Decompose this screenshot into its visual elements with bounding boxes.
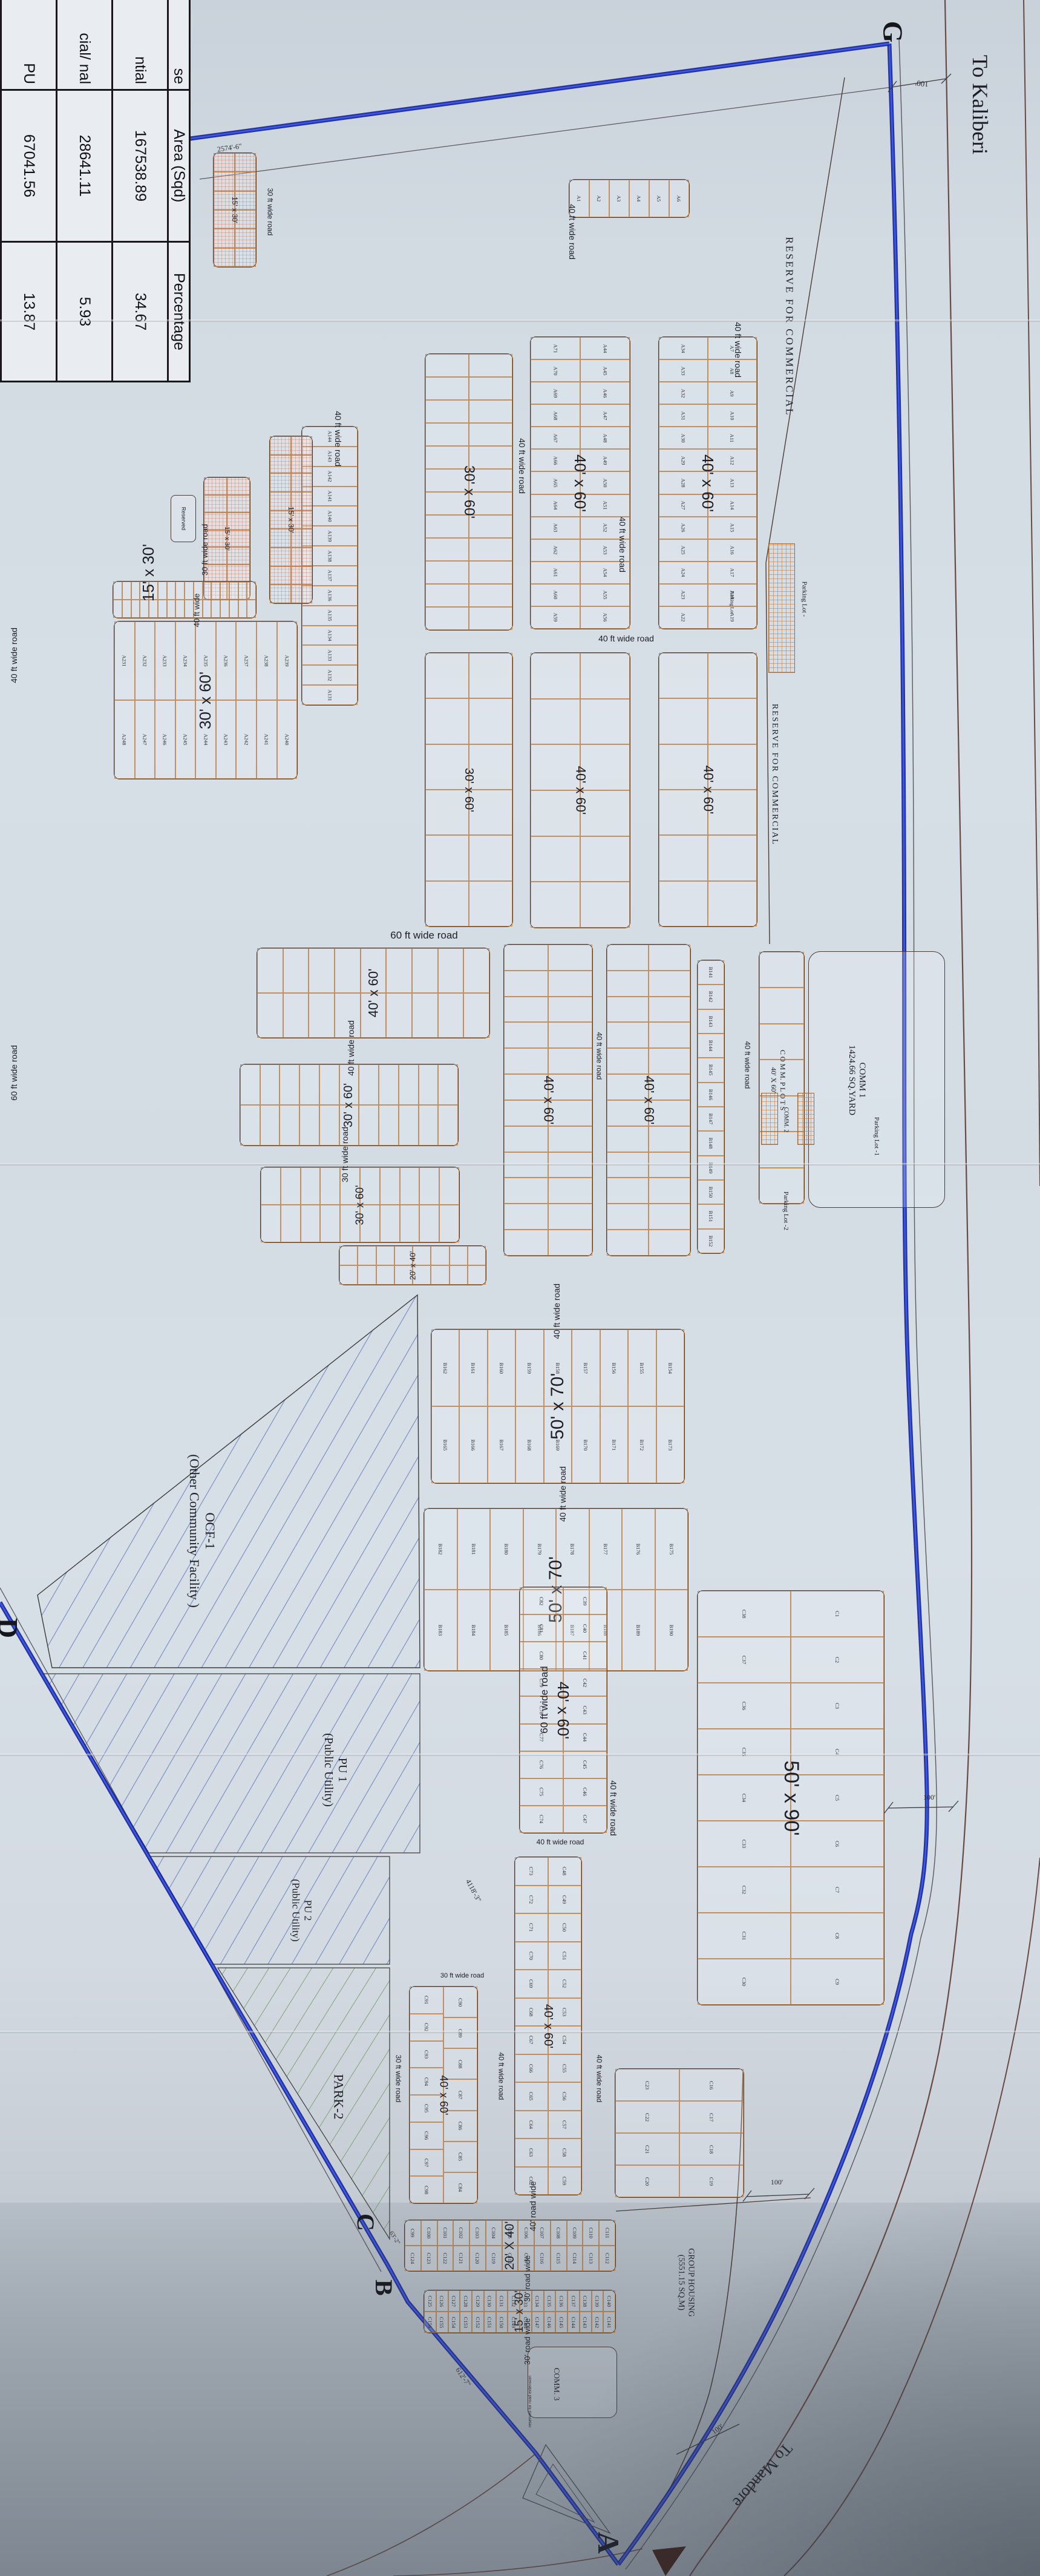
plot-cell — [504, 1178, 548, 1204]
plot-cell — [438, 1064, 458, 1105]
plot-C9: C9 — [791, 1959, 884, 2005]
plot-cell — [291, 548, 312, 566]
plot-C17: C17 — [679, 2101, 744, 2133]
plot-cell — [399, 1105, 419, 1145]
plot-cell — [386, 948, 412, 993]
plot-cell — [394, 1246, 413, 1265]
plot-block-a-tiny — [113, 581, 257, 618]
plot-cell — [291, 473, 312, 492]
plot-C42: C42 — [563, 1669, 607, 1696]
plot-C110: C110 — [583, 2220, 599, 2246]
plot-C38: C38 — [698, 1591, 791, 1637]
plot-cell — [291, 511, 312, 529]
road-curve-sw2 — [393, 2549, 643, 2576]
plot-A70: A70 — [531, 359, 580, 382]
plot-C142: C142 — [592, 2312, 604, 2333]
plot-C146: C146 — [544, 2312, 556, 2333]
plot-cell — [504, 997, 548, 1023]
plot-A242: A242 — [236, 700, 257, 779]
plot-cell — [708, 653, 757, 698]
plot-cell — [548, 997, 592, 1023]
plot-C139: C139 — [592, 2290, 604, 2312]
plot-cell — [469, 423, 512, 446]
plot-C31: C31 — [698, 1913, 791, 1959]
plot-C50: C50 — [548, 1913, 581, 1942]
plot-cell — [759, 1024, 804, 1060]
table-percentage-value: 34.67 — [113, 242, 168, 382]
plot-C81: C81 — [520, 1614, 563, 1642]
group-housing-topline — [616, 2198, 811, 2211]
plot-block-a-1530-h1: 15' x 30' — [213, 152, 257, 267]
plot-C107: C107 — [534, 2220, 551, 2246]
plot-cell — [204, 477, 227, 495]
plot-cell — [412, 993, 438, 1038]
plot-cell — [281, 1205, 301, 1242]
plot-A64: A64 — [531, 494, 580, 517]
plot-cell — [227, 530, 250, 548]
plot-cell — [649, 1074, 690, 1100]
plot-cell — [238, 582, 247, 600]
plot-A233: A233 — [155, 621, 175, 700]
plot-cell — [339, 1246, 358, 1265]
plot-cell — [214, 191, 235, 210]
plot-C73: C73 — [515, 1857, 548, 1886]
plot-B177: B177 — [589, 1509, 623, 1590]
plot-C33: C33 — [698, 1821, 791, 1867]
plot-cell — [149, 600, 158, 618]
plot-cell — [548, 1204, 592, 1230]
plot-C53: C53 — [548, 1998, 581, 2027]
plot-block-c-1623: C23C22C21C20C16C17C18C19 — [615, 2068, 744, 2198]
plot-cell — [227, 565, 250, 582]
plot-C119: C119 — [486, 2246, 502, 2271]
plot-cell — [309, 993, 335, 1038]
plot-block-a-3060-n: 30' x 60' — [425, 353, 513, 631]
plot-C86: C86 — [443, 2111, 477, 2142]
plot-cell — [229, 582, 238, 600]
plot-C114: C114 — [567, 2246, 583, 2271]
plot-cell — [358, 1265, 376, 1285]
plot-block-c-4060-w: C91C92C93C94C95C96C97C98C90C89C88C87C86C… — [409, 1986, 478, 2204]
plot-cell — [235, 229, 256, 247]
plot-cell — [394, 1265, 413, 1285]
plot-A54: A54 — [580, 562, 630, 584]
plot-A231: A231 — [114, 621, 135, 700]
plot-A30: A30 — [659, 427, 708, 449]
plot-C103: C103 — [469, 2220, 486, 2246]
plot-C20: C20 — [615, 2165, 679, 2197]
plot-C36: C36 — [698, 1683, 791, 1729]
plot-cell — [214, 229, 235, 247]
plot-C63: C63 — [515, 2138, 548, 2167]
plot-cell — [270, 529, 291, 548]
plot-A18: A18 — [708, 584, 757, 606]
plot-cell — [425, 538, 469, 561]
parking-grid — [797, 1093, 814, 1145]
plot-B147: B147 — [698, 1107, 724, 1131]
plot-cell — [438, 948, 464, 993]
table-percentage-value: 5.93 — [57, 242, 113, 382]
plot-B161: B161 — [459, 1329, 487, 1406]
plot-A132: A132 — [302, 665, 358, 685]
plot-cell — [419, 1105, 439, 1145]
plot-A237: A237 — [236, 621, 257, 700]
table-corner-cell: se — [168, 0, 190, 90]
plot-cell — [339, 1064, 359, 1105]
plot-cell — [220, 600, 229, 618]
table-row: ntial167538.8934.67 — [113, 0, 168, 382]
plot-cell — [291, 529, 312, 548]
plot-A61: A61 — [531, 562, 580, 584]
plot-C97: C97 — [410, 2149, 443, 2177]
plot-cell — [319, 1105, 339, 1145]
plot-C98: C98 — [410, 2176, 443, 2203]
plot-A8: A8 — [708, 359, 757, 382]
plot-block-b-4060-2: 40' x 60' — [606, 944, 691, 1256]
plot-C136: C136 — [555, 2290, 567, 2312]
plot-B144: B144 — [698, 1034, 724, 1058]
plot-B179: B179 — [523, 1509, 557, 1590]
plot-C66: C66 — [515, 2054, 548, 2083]
plot-C67: C67 — [515, 2026, 548, 2054]
plot-block-comm-1 — [808, 951, 945, 1208]
plot-cell — [113, 582, 122, 600]
plot-cell — [607, 1074, 649, 1100]
plot-C46: C46 — [563, 1778, 607, 1806]
plot-cell — [649, 1178, 690, 1204]
plot-A24: A24 — [659, 562, 708, 584]
plot-C111: C111 — [599, 2220, 615, 2246]
ocf-area — [38, 1295, 420, 1668]
top-strip-line — [200, 87, 892, 179]
plot-block-comm-plots — [759, 951, 805, 1204]
reserve-strip-line — [766, 77, 845, 944]
plot-A22: A22 — [659, 606, 708, 629]
landuse-table: se Area (Sqd) Percentage ntial167538.893… — [0, 0, 191, 352]
plot-A71: A71 — [531, 337, 580, 359]
plot-B149: B149 — [698, 1156, 724, 1180]
plot-C76: C76 — [520, 1751, 563, 1778]
plot-B146: B146 — [698, 1083, 724, 1107]
plot-B158: B158 — [544, 1329, 572, 1406]
plot-cell — [659, 653, 708, 698]
plot-A19: A19 — [708, 606, 757, 629]
plot-cell — [358, 1246, 376, 1265]
plot-C121: C121 — [453, 2246, 469, 2271]
plot-cell — [386, 993, 412, 1038]
plot-cell — [185, 600, 194, 618]
plot-cell — [260, 1105, 280, 1145]
plot-C124: C124 — [405, 2246, 421, 2271]
plot-C47: C47 — [563, 1806, 607, 1833]
plot-A244: A244 — [195, 700, 216, 779]
plot-C112: C112 — [599, 2246, 615, 2271]
plot-C57: C57 — [548, 2111, 581, 2139]
plot-cell — [548, 945, 592, 971]
plot-C125: C125 — [424, 2290, 436, 2312]
plot-cell — [759, 952, 804, 988]
plot-cell — [607, 945, 649, 971]
plot-cell — [360, 1205, 380, 1242]
plot-B142: B142 — [698, 985, 724, 1009]
plot-A52: A52 — [580, 517, 630, 539]
plot-cell — [359, 1064, 379, 1105]
plot-cell — [131, 600, 140, 618]
plot-cell — [469, 400, 512, 423]
plot-cell — [339, 1105, 359, 1145]
plot-cell — [235, 172, 256, 191]
plot-B150: B150 — [698, 1180, 724, 1204]
plot-cell — [469, 607, 512, 630]
plot-C127: C127 — [448, 2290, 460, 2312]
plot-A235: A235 — [195, 621, 216, 700]
plot-block-b-col: B141B142B143B144B145B146B147B148B149B150… — [697, 960, 725, 1254]
plot-block-a-row-top: A1A2A3A4A5A6 — [569, 179, 690, 218]
plot-cell — [204, 565, 227, 582]
plot-A245: A245 — [175, 700, 196, 779]
plot-C78: C78 — [520, 1696, 563, 1723]
plot-C88: C88 — [443, 2048, 477, 2079]
plot-A131: A131 — [302, 685, 358, 705]
plot-B190: B190 — [655, 1590, 688, 1671]
plot-cell — [149, 582, 158, 600]
plot-A13: A13 — [708, 471, 757, 494]
plot-cell — [260, 1064, 280, 1105]
plot-cell — [257, 948, 283, 993]
plot-block-c-1530: C125C126C127C128C129C130C131C132C133C134… — [424, 2290, 616, 2333]
plot-C115: C115 — [551, 2246, 567, 2271]
table-row-label: ntial — [113, 0, 168, 90]
plot-cell — [425, 446, 469, 469]
table-row-label: PU — [1, 0, 57, 90]
plot-cell — [301, 1167, 321, 1205]
plot-C71: C71 — [515, 1913, 548, 1942]
plot-C85: C85 — [443, 2142, 477, 2172]
plot-cell — [548, 1126, 592, 1152]
plot-cell — [204, 513, 227, 530]
plot-cell — [247, 600, 256, 618]
plot-B159: B159 — [515, 1329, 543, 1406]
plot-C106: C106 — [518, 2220, 534, 2246]
plot-cell — [211, 582, 220, 600]
plot-A65: A65 — [531, 471, 580, 494]
plot-C147: C147 — [532, 2312, 544, 2333]
plot-C8: C8 — [791, 1913, 884, 1959]
plot-B183: B183 — [424, 1590, 457, 1671]
plot-cell — [580, 882, 630, 928]
plot-cell — [167, 582, 176, 600]
plot-B141: B141 — [698, 960, 724, 985]
plot-cell — [468, 1246, 486, 1265]
plot-C58: C58 — [548, 2138, 581, 2167]
plot-B182: B182 — [424, 1509, 457, 1590]
plot-C138: C138 — [580, 2290, 592, 2312]
plot-cell — [425, 400, 469, 423]
plot-A48: A48 — [580, 427, 630, 449]
plot-cell — [283, 948, 309, 993]
plot-block-z-4060: 40' x 60' — [257, 948, 490, 1038]
plot-cell — [439, 1167, 459, 1205]
plot-A16: A16 — [708, 539, 757, 562]
plot-C62: C62 — [515, 2167, 548, 2195]
plot-A7: A7 — [708, 337, 757, 359]
plot-B170: B170 — [572, 1406, 600, 1483]
plot-cell — [399, 1064, 419, 1105]
plot-cell — [158, 582, 167, 600]
plot-C51: C51 — [548, 1942, 581, 1970]
plot-C72: C72 — [515, 1886, 548, 1914]
plot-C113: C113 — [583, 2246, 599, 2271]
plot-cell — [425, 607, 469, 630]
plot-cell — [708, 790, 757, 835]
plot-cell — [291, 566, 312, 585]
plot-cell — [211, 600, 220, 618]
plot-block-c-2040: C99C100C101C102C103C104C105C106C107C108C… — [404, 2220, 616, 2272]
plot-cell — [548, 1152, 592, 1178]
parking-grid — [761, 1093, 778, 1145]
plot-A69: A69 — [531, 382, 580, 404]
plot-C35: C35 — [698, 1729, 791, 1775]
plot-cell — [659, 744, 708, 790]
plot-block-z-3060-1: 30' x 60' — [240, 1064, 459, 1146]
plot-cell — [257, 993, 283, 1038]
plot-cell — [214, 210, 235, 229]
plot-cell — [283, 993, 309, 1038]
plot-block-a-4060-ne: A34A33A32A31A30A29A28A27A26A25A24A23A22A… — [658, 336, 757, 629]
plot-C116: C116 — [534, 2246, 551, 2271]
table-area-value: 167538.89 — [113, 90, 168, 242]
plot-B178: B178 — [556, 1509, 589, 1590]
plot-B173: B173 — [656, 1406, 684, 1483]
plot-cell — [359, 1105, 379, 1145]
plot-cell — [580, 699, 630, 745]
plot-cell — [469, 377, 512, 400]
plot-C23: C23 — [615, 2069, 679, 2101]
plot-cell — [425, 835, 469, 880]
plot-A32: A32 — [659, 382, 708, 404]
plot-B184: B184 — [457, 1590, 491, 1671]
plot-cell — [425, 744, 469, 790]
plot-cell — [229, 600, 238, 618]
plot-A34: A34 — [659, 337, 708, 359]
plot-A246: A246 — [155, 700, 175, 779]
plot-A66: A66 — [531, 449, 580, 471]
plot-cell — [469, 744, 512, 790]
plot-cell — [649, 1100, 690, 1126]
plot-cell — [301, 1205, 321, 1242]
plot-block-a-3060-s: A231A232A233A234A235A236A237A238A239A248… — [114, 621, 298, 779]
plot-cell — [649, 945, 690, 971]
plot-cell — [380, 1167, 400, 1205]
plot-cell — [214, 153, 235, 172]
plot-A53: A53 — [580, 539, 630, 562]
plot-cell — [361, 948, 387, 993]
table-row-label: cial/ nal — [57, 0, 113, 90]
table-header-row: se Area (Sqd) Percentage — [168, 0, 190, 382]
plot-C122: C122 — [437, 2246, 454, 2271]
plot-cell — [607, 1178, 649, 1204]
plot-cell — [340, 1205, 360, 1242]
plot-cell — [309, 948, 335, 993]
plot-block-c-4060-n: C82C81C80C79C78C77C76C75C74C39C40C41C42C… — [519, 1587, 607, 1834]
plot-C74: C74 — [520, 1806, 563, 1833]
plot-B180: B180 — [490, 1509, 523, 1590]
plot-cell — [320, 1205, 340, 1242]
plot-C1: C1 — [791, 1591, 884, 1637]
plot-C44: C44 — [563, 1724, 607, 1751]
plot-cell — [469, 561, 512, 584]
plot-cell — [412, 948, 438, 993]
plot-C6: C6 — [791, 1821, 884, 1867]
plot-C18: C18 — [679, 2133, 744, 2165]
plot-cell — [469, 584, 512, 607]
plot-cell — [531, 882, 580, 928]
plot-C145: C145 — [555, 2312, 567, 2333]
plot-C91: C91 — [410, 1987, 443, 2014]
plot-C64: C64 — [515, 2111, 548, 2139]
plot-B181: B181 — [457, 1509, 491, 1590]
plot-A2: A2 — [589, 180, 609, 217]
plot-A46: A46 — [580, 382, 630, 404]
plot-C77: C77 — [520, 1724, 563, 1751]
plot-cell — [649, 1126, 690, 1152]
plot-C155: C155 — [436, 2312, 448, 2333]
plot-C41: C41 — [563, 1642, 607, 1669]
plot-cell — [607, 1230, 649, 1256]
plot-C80: C80 — [520, 1642, 563, 1669]
plot-A47: A47 — [580, 404, 630, 427]
plot-cell — [270, 492, 291, 511]
plot-cell — [425, 790, 469, 835]
plot-cell — [759, 988, 804, 1023]
table-percentage-value: 13.87 — [1, 242, 57, 382]
plot-A51: A51 — [580, 494, 630, 517]
plot-A33: A33 — [659, 359, 708, 382]
plot-C45: C45 — [563, 1751, 607, 1778]
plot-cell — [548, 1022, 592, 1048]
plot-B189: B189 — [622, 1590, 655, 1671]
plot-A248: A248 — [114, 700, 135, 779]
plot-cell — [504, 945, 548, 971]
plot-B145: B145 — [698, 1058, 724, 1082]
plot-block-a-3060-n2: 30' x 60' — [425, 652, 513, 927]
plot-cell — [340, 1167, 360, 1205]
plot-cell — [185, 582, 194, 600]
pu2-area — [150, 1857, 390, 1964]
plot-A4: A4 — [629, 180, 649, 217]
plot-cell — [240, 1105, 260, 1145]
plot-block-b-4060-1: 40' x 60' — [503, 944, 593, 1256]
plot-cell — [240, 1064, 260, 1105]
plot-C137: C137 — [567, 2290, 580, 2312]
plot-A236: A236 — [216, 621, 237, 700]
plot-cell — [400, 1205, 420, 1242]
plot-cell — [504, 1100, 548, 1126]
plot-cell — [468, 1265, 486, 1285]
plot-cell — [270, 566, 291, 585]
plot-cell — [122, 600, 131, 618]
plot-cell — [548, 1048, 592, 1074]
plot-block-b-5070-1: B162B161B160B159B158B157B156B155B154B165… — [431, 1329, 685, 1484]
plot-A56: A56 — [580, 606, 630, 629]
plot-cell — [425, 354, 469, 377]
plot-cell — [320, 1167, 340, 1205]
plot-B151: B151 — [698, 1204, 724, 1228]
plot-cell — [194, 582, 203, 600]
plot-C22: C22 — [615, 2101, 679, 2133]
plot-A12: A12 — [708, 449, 757, 471]
plot-cell — [580, 653, 630, 699]
